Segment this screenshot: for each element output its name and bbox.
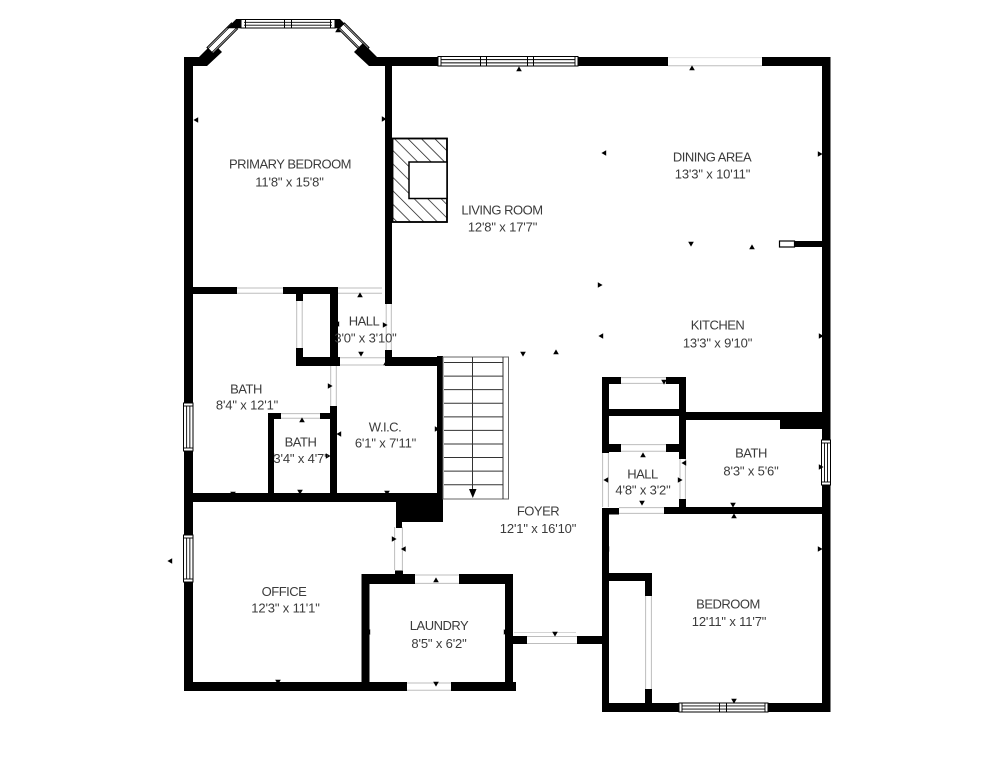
svg-text:W.I.C.: W.I.C. [369, 420, 401, 435]
svg-text:HALL: HALL [349, 314, 380, 329]
svg-text:4'8" x 3'2": 4'8" x 3'2" [615, 483, 671, 498]
svg-text:12'1" x 16'10": 12'1" x 16'10" [500, 521, 577, 536]
svg-text:8'3" x 5'6": 8'3" x 5'6" [723, 464, 779, 479]
svg-text:OFFICE: OFFICE [262, 584, 307, 599]
svg-text:PRIMARY BEDROOM: PRIMARY BEDROOM [229, 157, 351, 172]
svg-text:3'4" x 4'7": 3'4" x 4'7" [273, 451, 329, 466]
svg-text:13'3" x 9'10": 13'3" x 9'10" [683, 336, 753, 351]
svg-text:12'8" x 17'7": 12'8" x 17'7" [468, 220, 538, 235]
svg-text:12'11" x 11'7": 12'11" x 11'7" [692, 614, 767, 629]
svg-text:HALL: HALL [627, 467, 658, 482]
svg-text:LAUNDRY: LAUNDRY [410, 618, 469, 633]
svg-text:FOYER: FOYER [517, 504, 559, 519]
svg-text:13'3" x 10'11": 13'3" x 10'11" [675, 167, 751, 182]
svg-text:LIVING ROOM: LIVING ROOM [461, 203, 542, 218]
svg-text:BATH: BATH [230, 382, 262, 397]
svg-text:8'4" x 12'1": 8'4" x 12'1" [216, 398, 279, 413]
svg-text:8'5" x 6'2": 8'5" x 6'2" [411, 636, 467, 651]
svg-text:BATH: BATH [285, 435, 317, 450]
svg-text:11'8" x 15'8": 11'8" x 15'8" [255, 175, 324, 190]
svg-text:DINING AREA: DINING AREA [673, 150, 752, 165]
svg-text:12'3" x 11'1": 12'3" x 11'1" [251, 601, 320, 616]
svg-text:KITCHEN: KITCHEN [691, 318, 745, 333]
svg-text:3'0" x 3'10": 3'0" x 3'10" [334, 331, 397, 346]
svg-text:BEDROOM: BEDROOM [696, 597, 760, 612]
svg-text:BATH: BATH [735, 446, 767, 461]
svg-text:6'1" x 7'11": 6'1" x 7'11" [355, 436, 417, 451]
